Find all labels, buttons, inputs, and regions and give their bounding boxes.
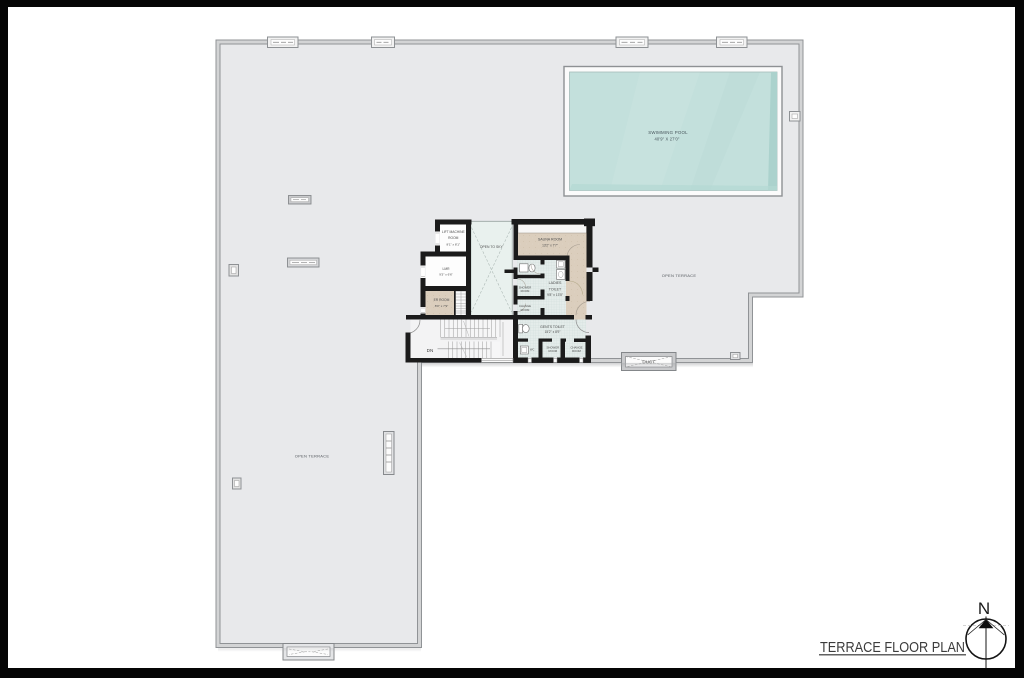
- svg-text:SWIMMING POOL: SWIMMING POOL: [648, 130, 688, 135]
- svg-text:TERRACE FLOOR PLAN: TERRACE FLOOR PLAN: [820, 640, 965, 656]
- svg-text:ROOM: ROOM: [572, 349, 581, 353]
- svg-text:ROOM: ROOM: [448, 236, 459, 240]
- svg-text:8'0" x 7'9": 8'0" x 7'9": [435, 304, 449, 308]
- svg-text:LADIES: LADIES: [549, 281, 562, 285]
- svg-text:40'9" X 27'0": 40'9" X 27'0": [654, 137, 679, 142]
- svg-text:WC: WC: [530, 348, 534, 352]
- svg-text:OPEN TERRACE: OPEN TERRACE: [662, 273, 697, 278]
- svg-text:9'8" x 13'5": 9'8" x 13'5": [547, 293, 563, 297]
- svg-text:N: N: [978, 599, 990, 618]
- svg-text:OPEN TERRACE: OPEN TERRACE: [295, 454, 330, 459]
- svg-text:SAUNA ROOM: SAUNA ROOM: [538, 238, 562, 242]
- svg-text:GENTS TOILET: GENTS TOILET: [540, 325, 566, 329]
- svg-text:15'2" x 8'9": 15'2" x 8'9": [545, 330, 561, 334]
- svg-text:OPEN TO SKY: OPEN TO SKY: [480, 245, 504, 249]
- svg-text:ER ROOM: ER ROOM: [434, 298, 450, 302]
- svg-text:ROOM: ROOM: [521, 308, 530, 312]
- svg-text:ROOM: ROOM: [548, 349, 557, 353]
- svg-text:8'1" x 8'1": 8'1" x 8'1": [447, 242, 461, 246]
- svg-text:ROOM: ROOM: [521, 289, 530, 293]
- svg-text:9'3" x 6'6": 9'3" x 6'6": [439, 272, 453, 276]
- svg-text:DN: DN: [427, 348, 434, 353]
- svg-text:LMR: LMR: [443, 267, 451, 271]
- svg-text:TOILET: TOILET: [549, 287, 562, 291]
- svg-text:LIFT MACHINE: LIFT MACHINE: [442, 230, 466, 234]
- svg-text:13'2" x 7'7": 13'2" x 7'7": [542, 243, 558, 247]
